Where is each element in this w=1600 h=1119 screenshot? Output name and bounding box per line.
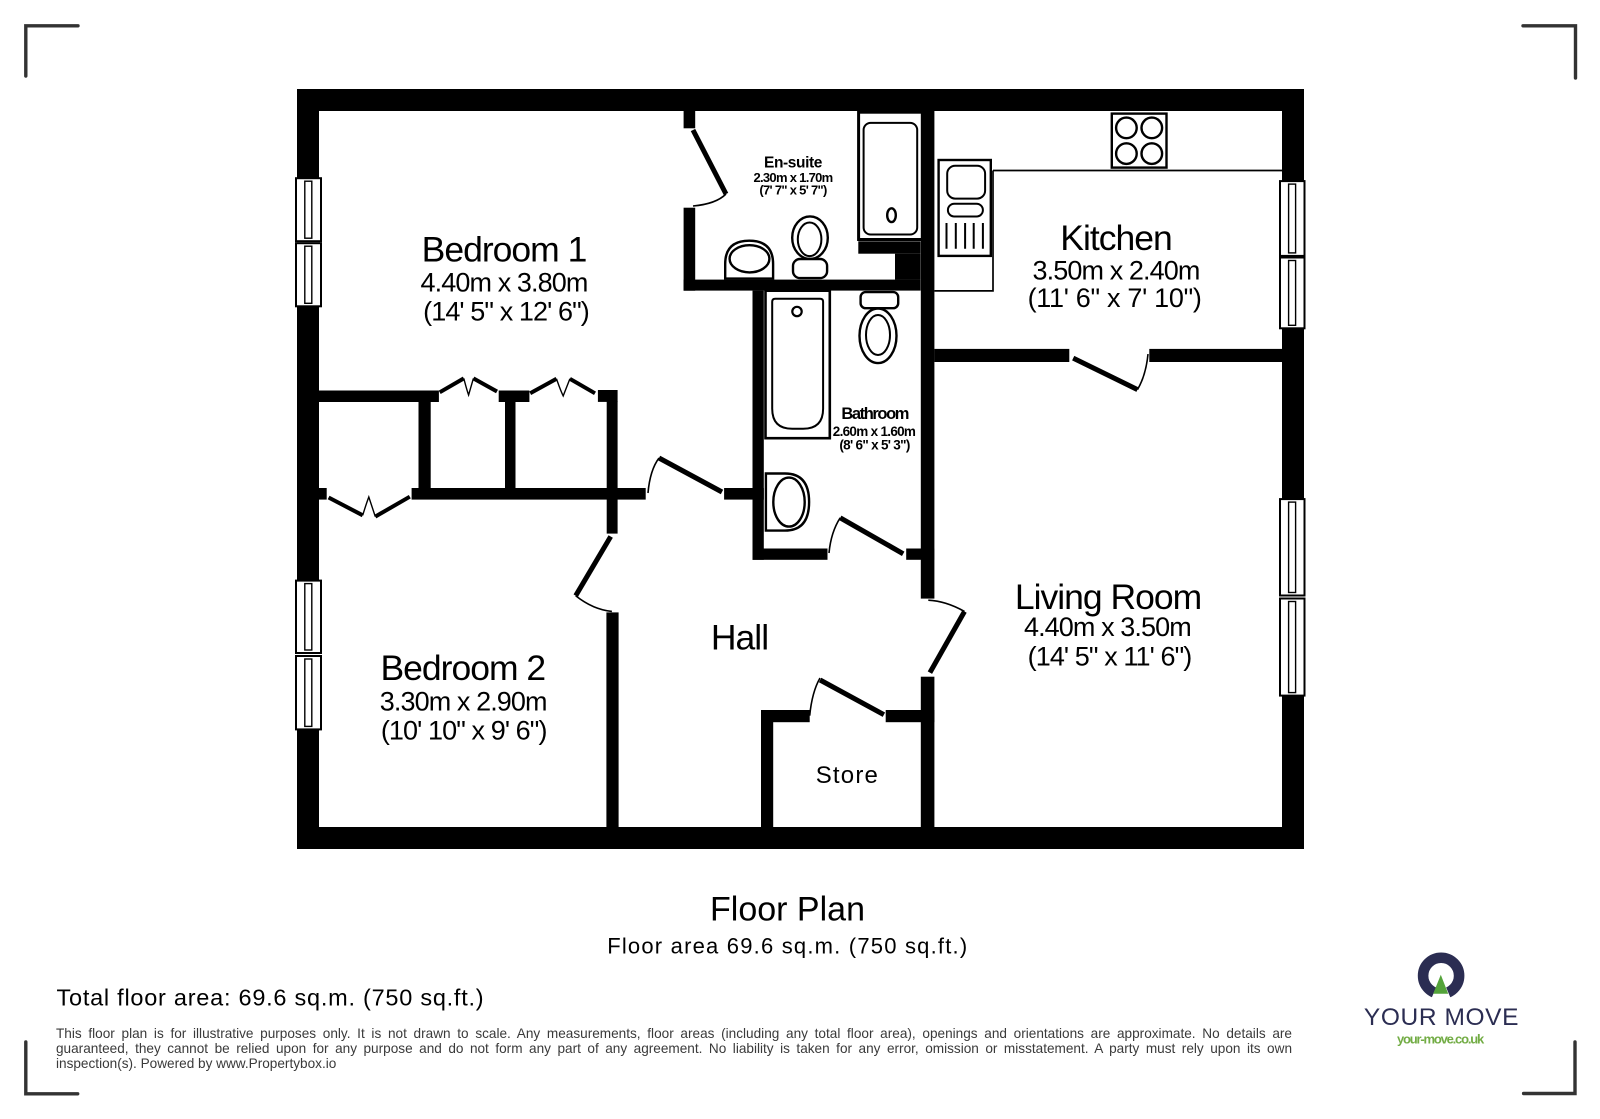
svg-text:Floor Plan: Floor Plan — [710, 890, 865, 928]
svg-text:Hall: Hall — [711, 618, 768, 658]
svg-text:(14' 5" x 12' 6"): (14' 5" x 12' 6") — [423, 297, 589, 327]
svg-text:4.40m x 3.80m: 4.40m x 3.80m — [421, 268, 588, 298]
svg-text:Bathroom: Bathroom — [841, 405, 908, 423]
svg-text:Store: Store — [816, 762, 879, 789]
svg-text:3.50m x 2.40m: 3.50m x 2.40m — [1033, 256, 1200, 286]
svg-text:Total floor area: 69.6 sq.m. (: Total floor area: 69.6 sq.m. (750 sq.ft.… — [57, 984, 485, 1010]
svg-text:(14' 5" x 11' 6"): (14' 5" x 11' 6") — [1028, 642, 1192, 672]
svg-text:Kitchen: Kitchen — [1060, 218, 1171, 258]
svg-text:Bedroom 1: Bedroom 1 — [422, 229, 587, 269]
svg-text:your-move.co.uk: your-move.co.uk — [1397, 1032, 1485, 1047]
svg-text:YOUR MOVE: YOUR MOVE — [1364, 1004, 1519, 1031]
svg-text:Bedroom 2: Bedroom 2 — [380, 648, 545, 688]
svg-text:(11' 6" x 7' 10"): (11' 6" x 7' 10") — [1028, 283, 1202, 313]
svg-text:(8' 6" x 5' 3"): (8' 6" x 5' 3") — [839, 437, 909, 452]
svg-text:4.40m x 3.50m: 4.40m x 3.50m — [1024, 612, 1191, 642]
svg-text:3.30m x 2.90m: 3.30m x 2.90m — [380, 687, 547, 717]
svg-text:En-suite: En-suite — [764, 154, 823, 171]
svg-text:(7' 7" x 5' 7"): (7' 7" x 5' 7") — [759, 183, 827, 198]
svg-text:Living Room: Living Room — [1015, 577, 1201, 617]
svg-text:Floor area 69.6 sq.m. (750 sq.: Floor area 69.6 sq.m. (750 sq.ft.) — [607, 933, 968, 958]
svg-text:(10' 10" x 9' 6"): (10' 10" x 9' 6") — [381, 716, 547, 746]
